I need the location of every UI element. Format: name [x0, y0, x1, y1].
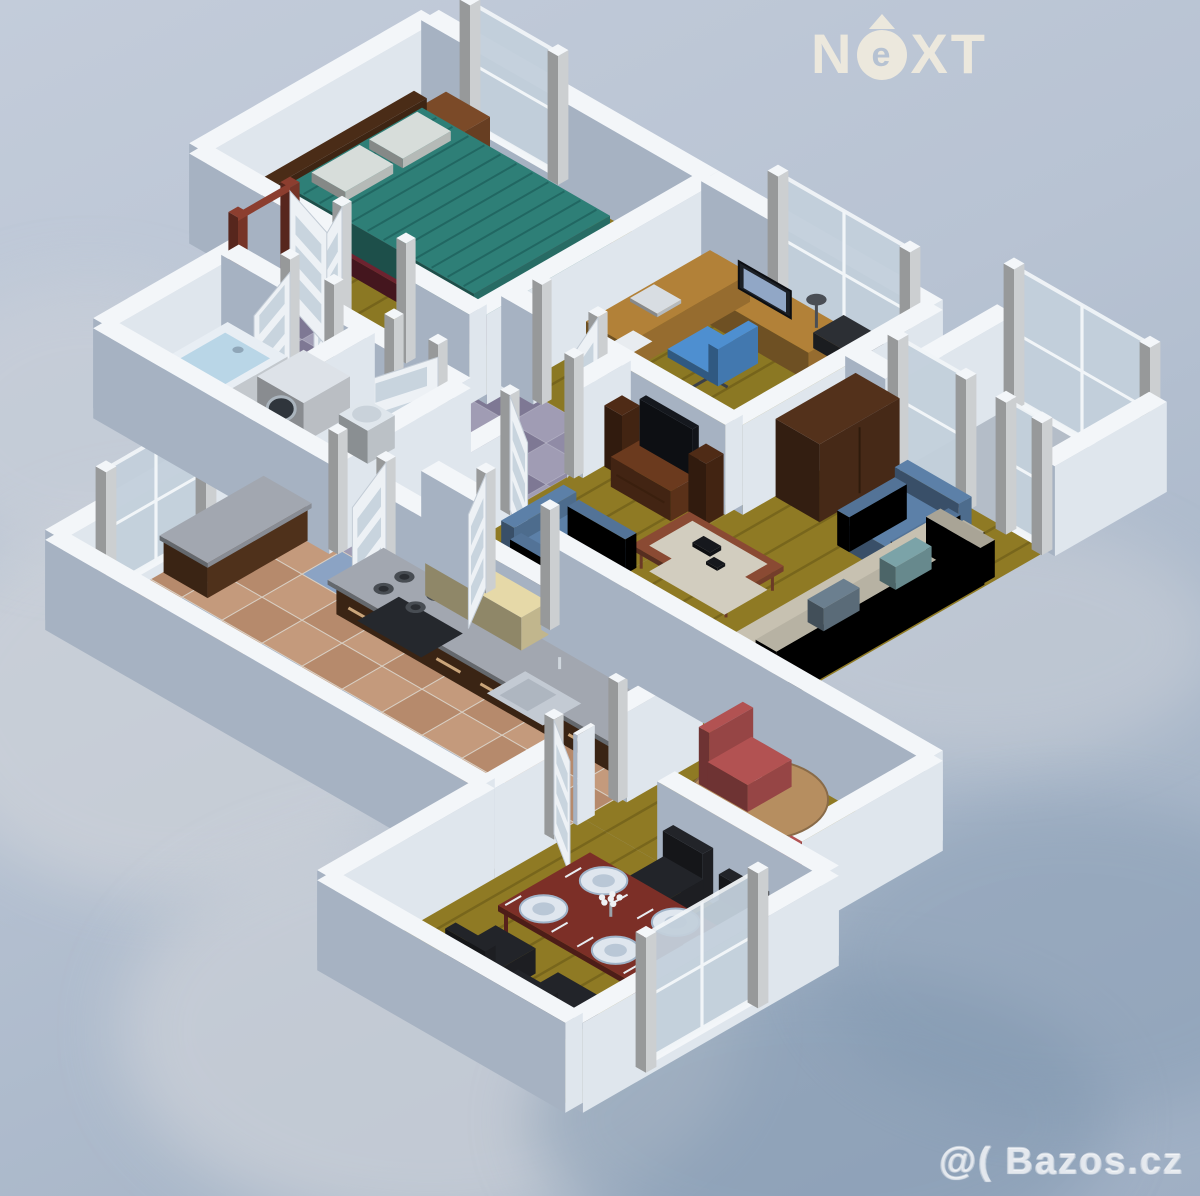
door-frame [564, 348, 583, 479]
balcony-glass-panel [996, 391, 1053, 556]
floorplan-scene [0, 0, 1200, 1196]
bazos-watermark: @( Bazos.cz [939, 1141, 1184, 1184]
logo-e-circle: e [857, 30, 907, 80]
logo-arrow-icon [869, 14, 895, 29]
next-logo: N e XT [811, 26, 988, 82]
logo-letters-xt: XT [910, 26, 988, 82]
door-frame [328, 423, 347, 554]
door-frame [532, 274, 551, 405]
logo-letter-n: N [811, 26, 854, 82]
door-frame [540, 499, 559, 630]
floorplan-render: N e XT @( Bazos.cz [0, 0, 1200, 1196]
door-frame [608, 672, 627, 803]
